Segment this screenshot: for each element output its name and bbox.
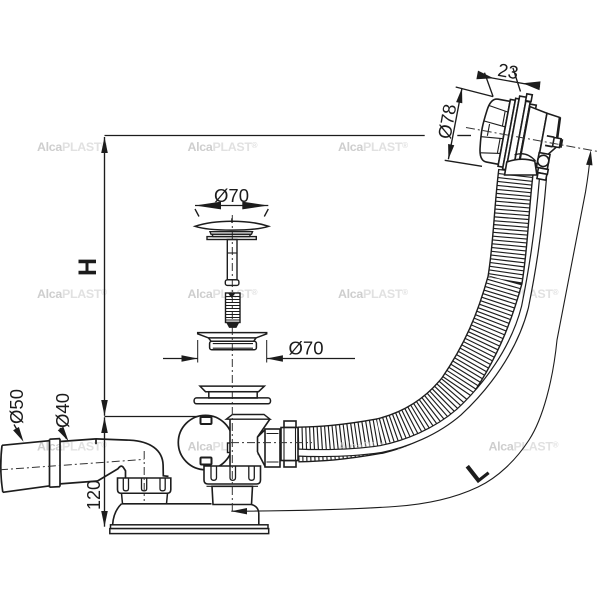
svg-text:AlcaPLAST®: AlcaPLAST® [37,140,107,154]
svg-text:AlcaPLAST®: AlcaPLAST® [338,287,408,301]
svg-text:AlcaPLAST®: AlcaPLAST® [489,440,559,454]
svg-text:H: H [74,258,102,276]
svg-text:23: 23 [496,59,520,83]
svg-text:Ø70: Ø70 [214,185,249,206]
svg-text:AlcaPLAST®: AlcaPLAST® [188,287,258,301]
svg-text:Ø40: Ø40 [52,393,73,428]
svg-text:Ø50: Ø50 [6,389,27,424]
svg-text:120: 120 [84,480,104,510]
svg-text:Ø70: Ø70 [289,338,324,359]
svg-text:AlcaPLAST®: AlcaPLAST® [188,140,258,154]
svg-text:AlcaPLAST®: AlcaPLAST® [338,140,408,154]
svg-text:AlcaPLAST®: AlcaPLAST® [37,287,107,301]
